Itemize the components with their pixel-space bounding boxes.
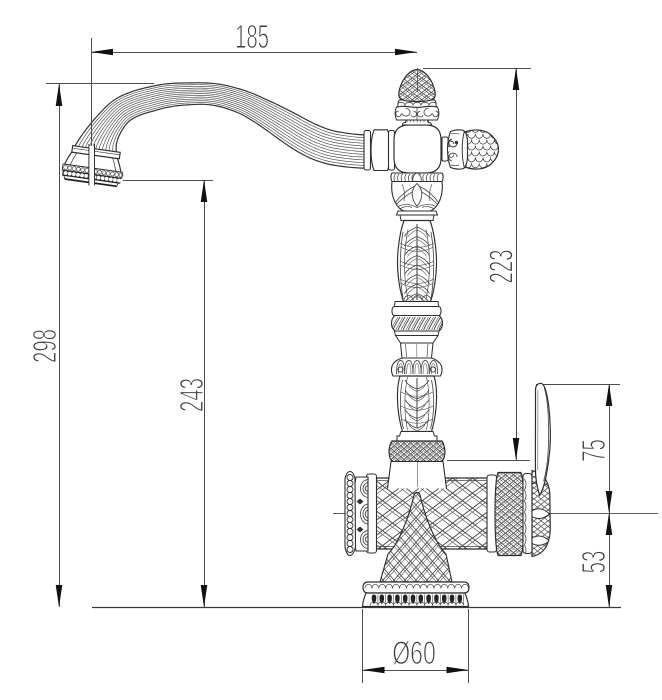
- svg-text:243: 243: [173, 378, 210, 412]
- svg-text:Ø60: Ø60: [392, 635, 436, 671]
- svg-text:223: 223: [482, 249, 519, 283]
- svg-text:298: 298: [26, 329, 63, 363]
- svg-text:53: 53: [575, 551, 612, 574]
- svg-text:185: 185: [235, 18, 269, 55]
- svg-text:75: 75: [575, 439, 612, 462]
